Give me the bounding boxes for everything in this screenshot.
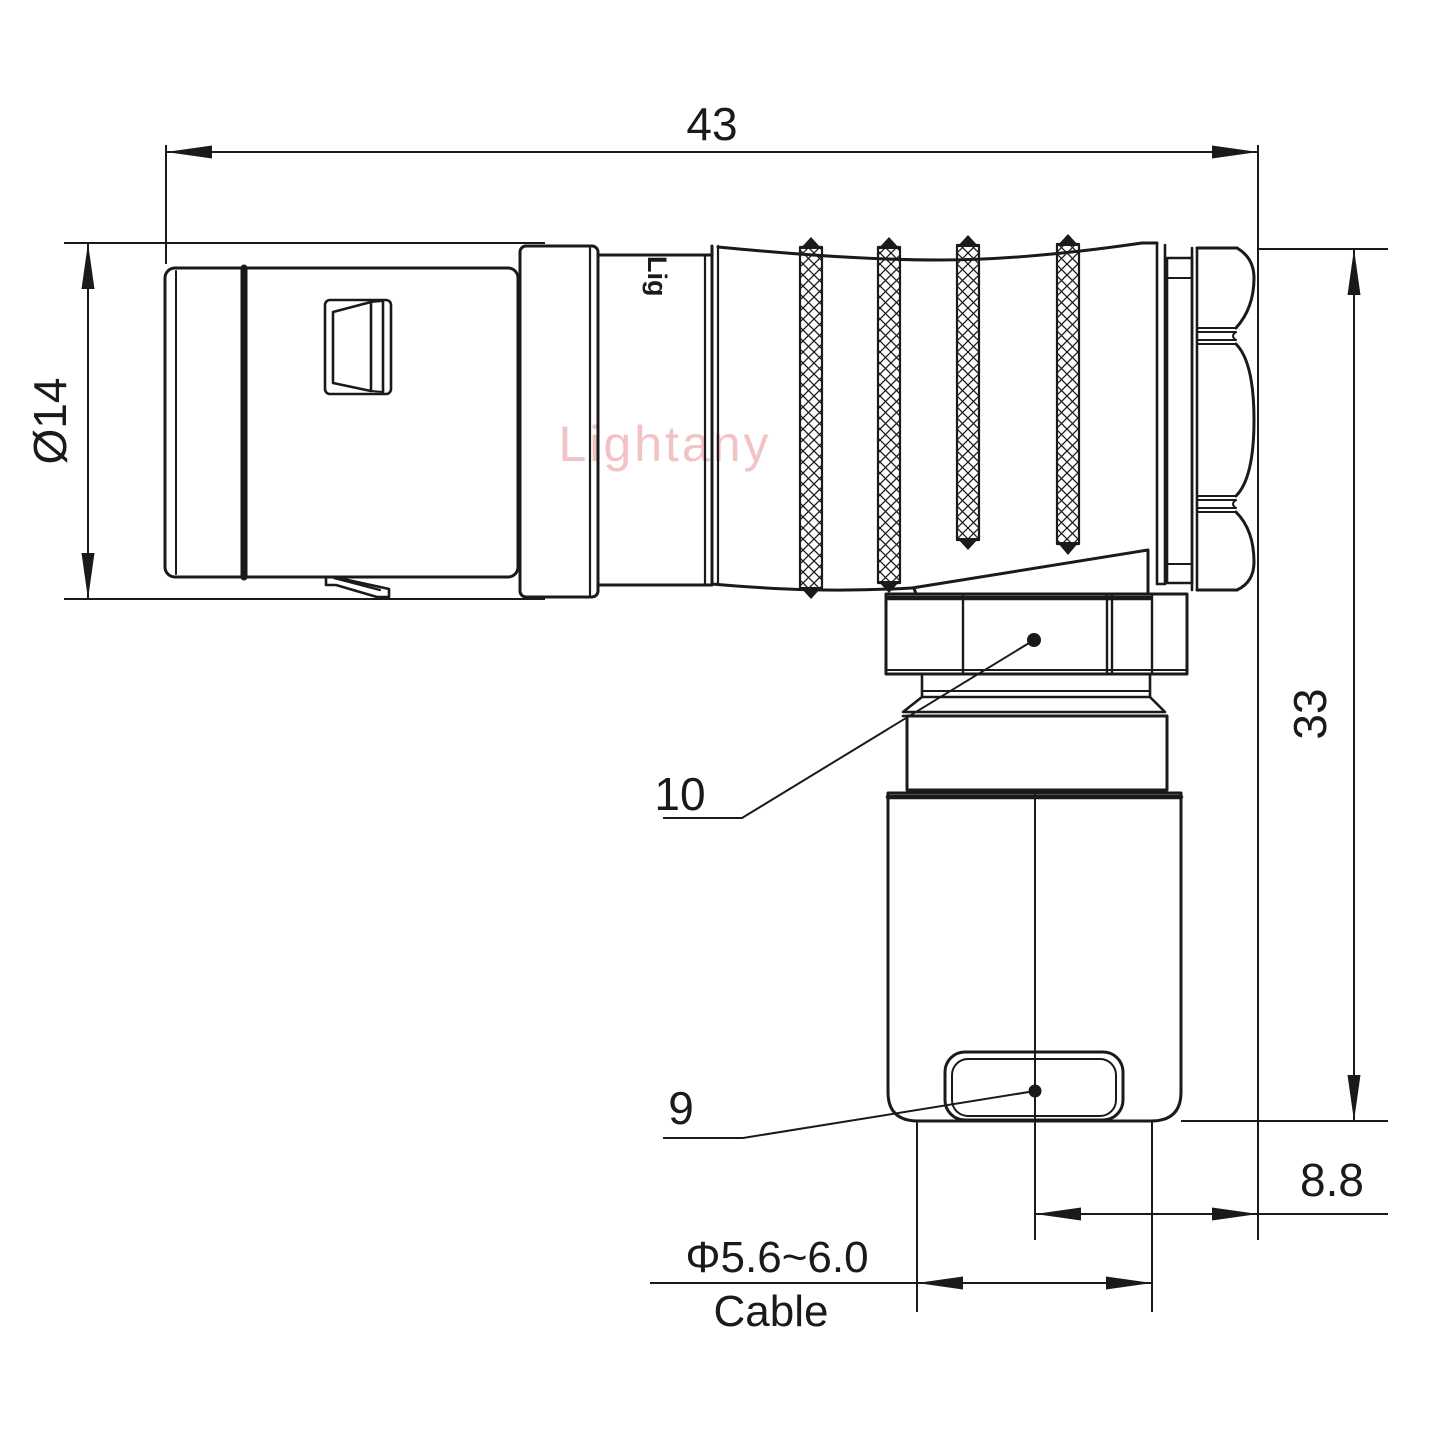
technical-drawing-page: Lightany (0, 0, 1440, 1440)
callout-coupling-nut-label: 10 (654, 768, 705, 820)
latch-notch (326, 577, 389, 597)
cable-label: Cable (714, 1287, 829, 1336)
dim-offset-label: 8.8 (1300, 1154, 1364, 1206)
front-sleeve (165, 268, 518, 577)
dim-diameter: Ø14 (24, 243, 545, 599)
dim-height-label: 33 (1284, 688, 1336, 739)
connector-side-view (165, 234, 1254, 1121)
dim-offset: 8.8 (1035, 793, 1388, 1240)
rear-nut (1167, 248, 1254, 590)
dim-cable-diameter-label: Φ5.6~6.0 (685, 1233, 868, 1282)
callout-cable-clamp-label: 9 (668, 1082, 694, 1134)
dim-height: 33 (1181, 249, 1388, 1121)
dim-diameter-label: Ø14 (24, 378, 76, 465)
knurl-bands (800, 234, 1079, 599)
rear-shell (712, 243, 1165, 594)
elbow-body (903, 674, 1167, 790)
callout-cable-clamp: 9 (663, 1082, 1042, 1138)
dim-cable: Φ5.6~6.0 Cable (650, 1121, 1152, 1336)
part-marking-text: Lig (642, 256, 672, 297)
dim-overall-length-label: 43 (686, 98, 737, 150)
connector-technical-drawing: Lightany (0, 0, 1440, 1440)
latch-window (325, 300, 391, 394)
